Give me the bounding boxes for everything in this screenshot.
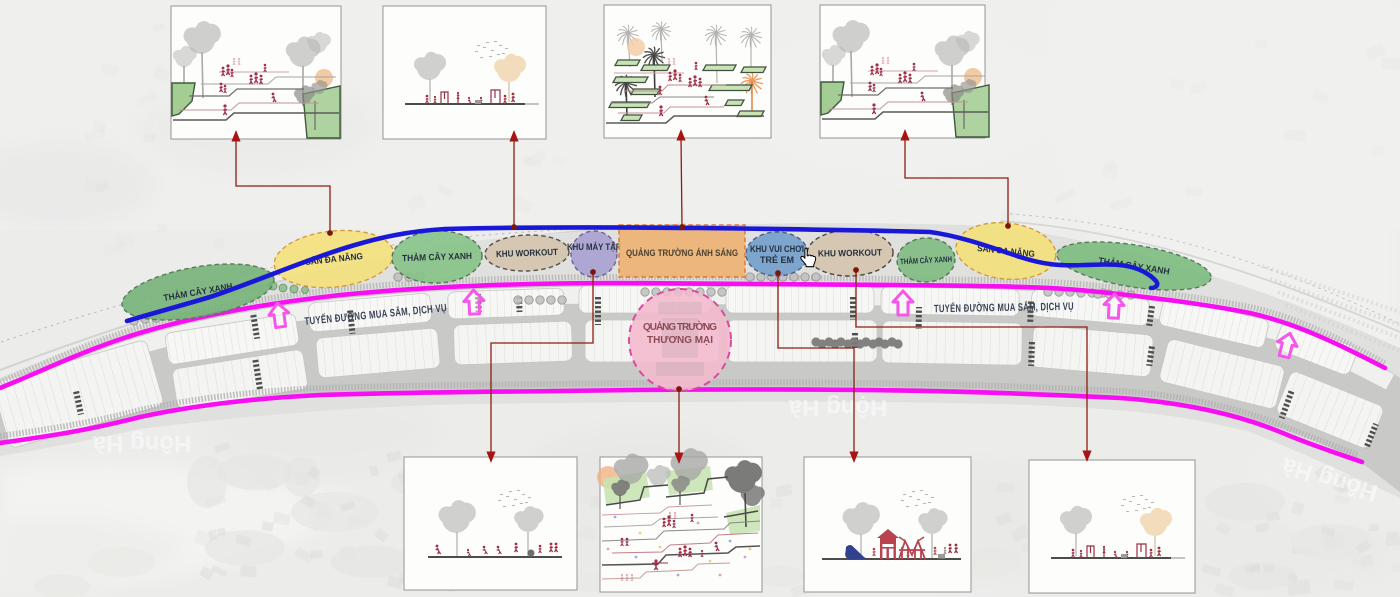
svg-text:KHU WORKOUT: KHU WORKOUT	[818, 247, 883, 258]
svg-text:KHU VUI CHƠI: KHU VUI CHƠI	[750, 244, 804, 254]
svg-text:TRẺ EM: TRẺ EM	[760, 254, 794, 265]
svg-text:QUẢNG TRƯỜNG: QUẢNG TRƯỜNG	[643, 320, 717, 333]
svg-text:QUẢNG TRƯỜNG ÁNH SÁNG: QUẢNG TRƯỜNG ÁNH SÁNG	[626, 247, 738, 259]
svg-text:Hộng Hà: Hộng Hà	[788, 394, 887, 421]
svg-text:KHU MÁY TẬP: KHU MÁY TẬP	[567, 241, 621, 252]
svg-text:TUYẾN ĐƯỜNG MUA SẮM, DỊCH VỤ: TUYẾN ĐƯỜNG MUA SẮM, DỊCH VỤ	[934, 300, 1074, 315]
svg-text:THƯƠNG MẠI: THƯƠNG MẠI	[647, 335, 713, 346]
svg-text:Hồng Hà: Hồng Hà	[92, 430, 191, 457]
